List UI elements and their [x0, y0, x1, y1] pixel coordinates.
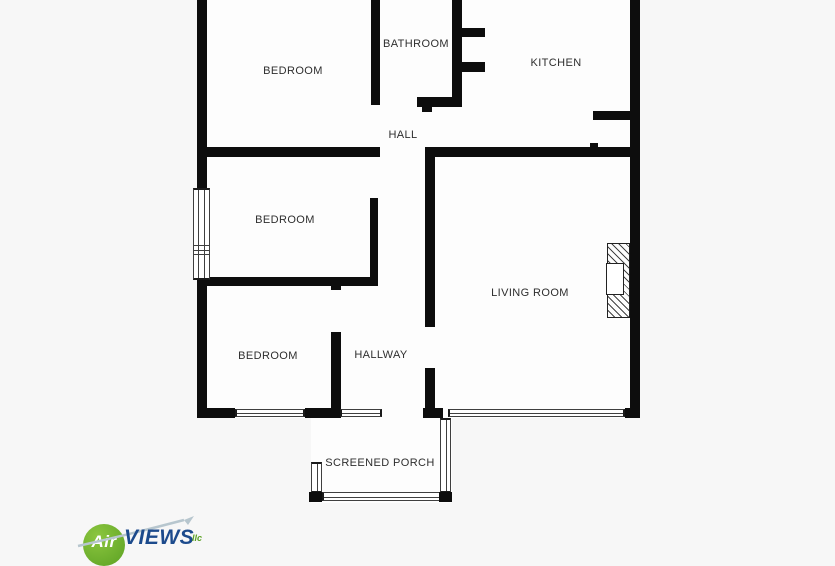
window-hallway-bottom [340, 409, 382, 417]
airviews-logo-circle: Air [83, 524, 125, 566]
wall-bathroom-bottom [417, 97, 462, 107]
window-bedroom-bottom [235, 409, 305, 417]
airviews-logo-air-text: Air [91, 532, 116, 552]
wall-bedroom-middle-right [370, 198, 378, 286]
room-label-bedroom-bottom: BEDROOM [238, 350, 298, 362]
wall-living-room-top [425, 147, 640, 157]
wall-bottom-segment [197, 408, 235, 418]
wall-stub [422, 107, 432, 112]
porch-corner-post [309, 492, 322, 502]
floor-plan: BEDROOM BATHROOM KITCHEN HALL BEDROOM LI… [0, 0, 835, 540]
room-label-kitchen: KITCHEN [530, 57, 581, 69]
wall-hall-living-upper [425, 147, 435, 327]
room-label-bedroom-middle: BEDROOM [255, 214, 315, 226]
room-label-screened-porch: SCREENED PORCH [325, 457, 435, 469]
porch-corner-post [439, 492, 452, 502]
wall-kitchen-stub-upper [462, 28, 485, 37]
window-living-room-bottom [448, 409, 625, 417]
room-label-bathroom: BATHROOM [383, 38, 449, 50]
wall-bedroom-bathroom [371, 0, 380, 105]
wall-hallway-left [331, 332, 341, 418]
room-label-hallway: HALLWAY [354, 349, 407, 361]
wall-kitchen-stub-lower [462, 62, 485, 72]
wall-bedroom-middle-bottom [197, 277, 377, 286]
room-label-hall: HALL [388, 129, 417, 141]
airviews-logo-views-text: VIEWS [124, 526, 194, 550]
porch-interior [311, 408, 452, 503]
wall-left-exterior-lower [197, 279, 207, 418]
airviews-logo-suffix-text: llc [192, 533, 202, 543]
porch-screen-right [440, 418, 451, 493]
wall-kitchen-nook-stub [593, 111, 640, 120]
wall-bedroom-top-bottom [197, 147, 380, 157]
wall-left-exterior-upper [197, 0, 207, 188]
wall-hallway-living-lower [425, 368, 435, 418]
wall-right-exterior [630, 0, 640, 418]
porch-screen-bottom [322, 492, 441, 501]
airviews-logo: Air VIEWS llc [80, 518, 220, 558]
room-label-living-room: LIVING ROOM [491, 287, 569, 299]
room-label-bedroom-top: BEDROOM [263, 65, 323, 77]
wall-bottom-segment [625, 408, 640, 418]
wall-bathroom-kitchen [452, 0, 462, 107]
fireplace-firebox [606, 263, 624, 295]
window-left-wall [193, 188, 210, 280]
porch-screen-left [311, 462, 322, 493]
